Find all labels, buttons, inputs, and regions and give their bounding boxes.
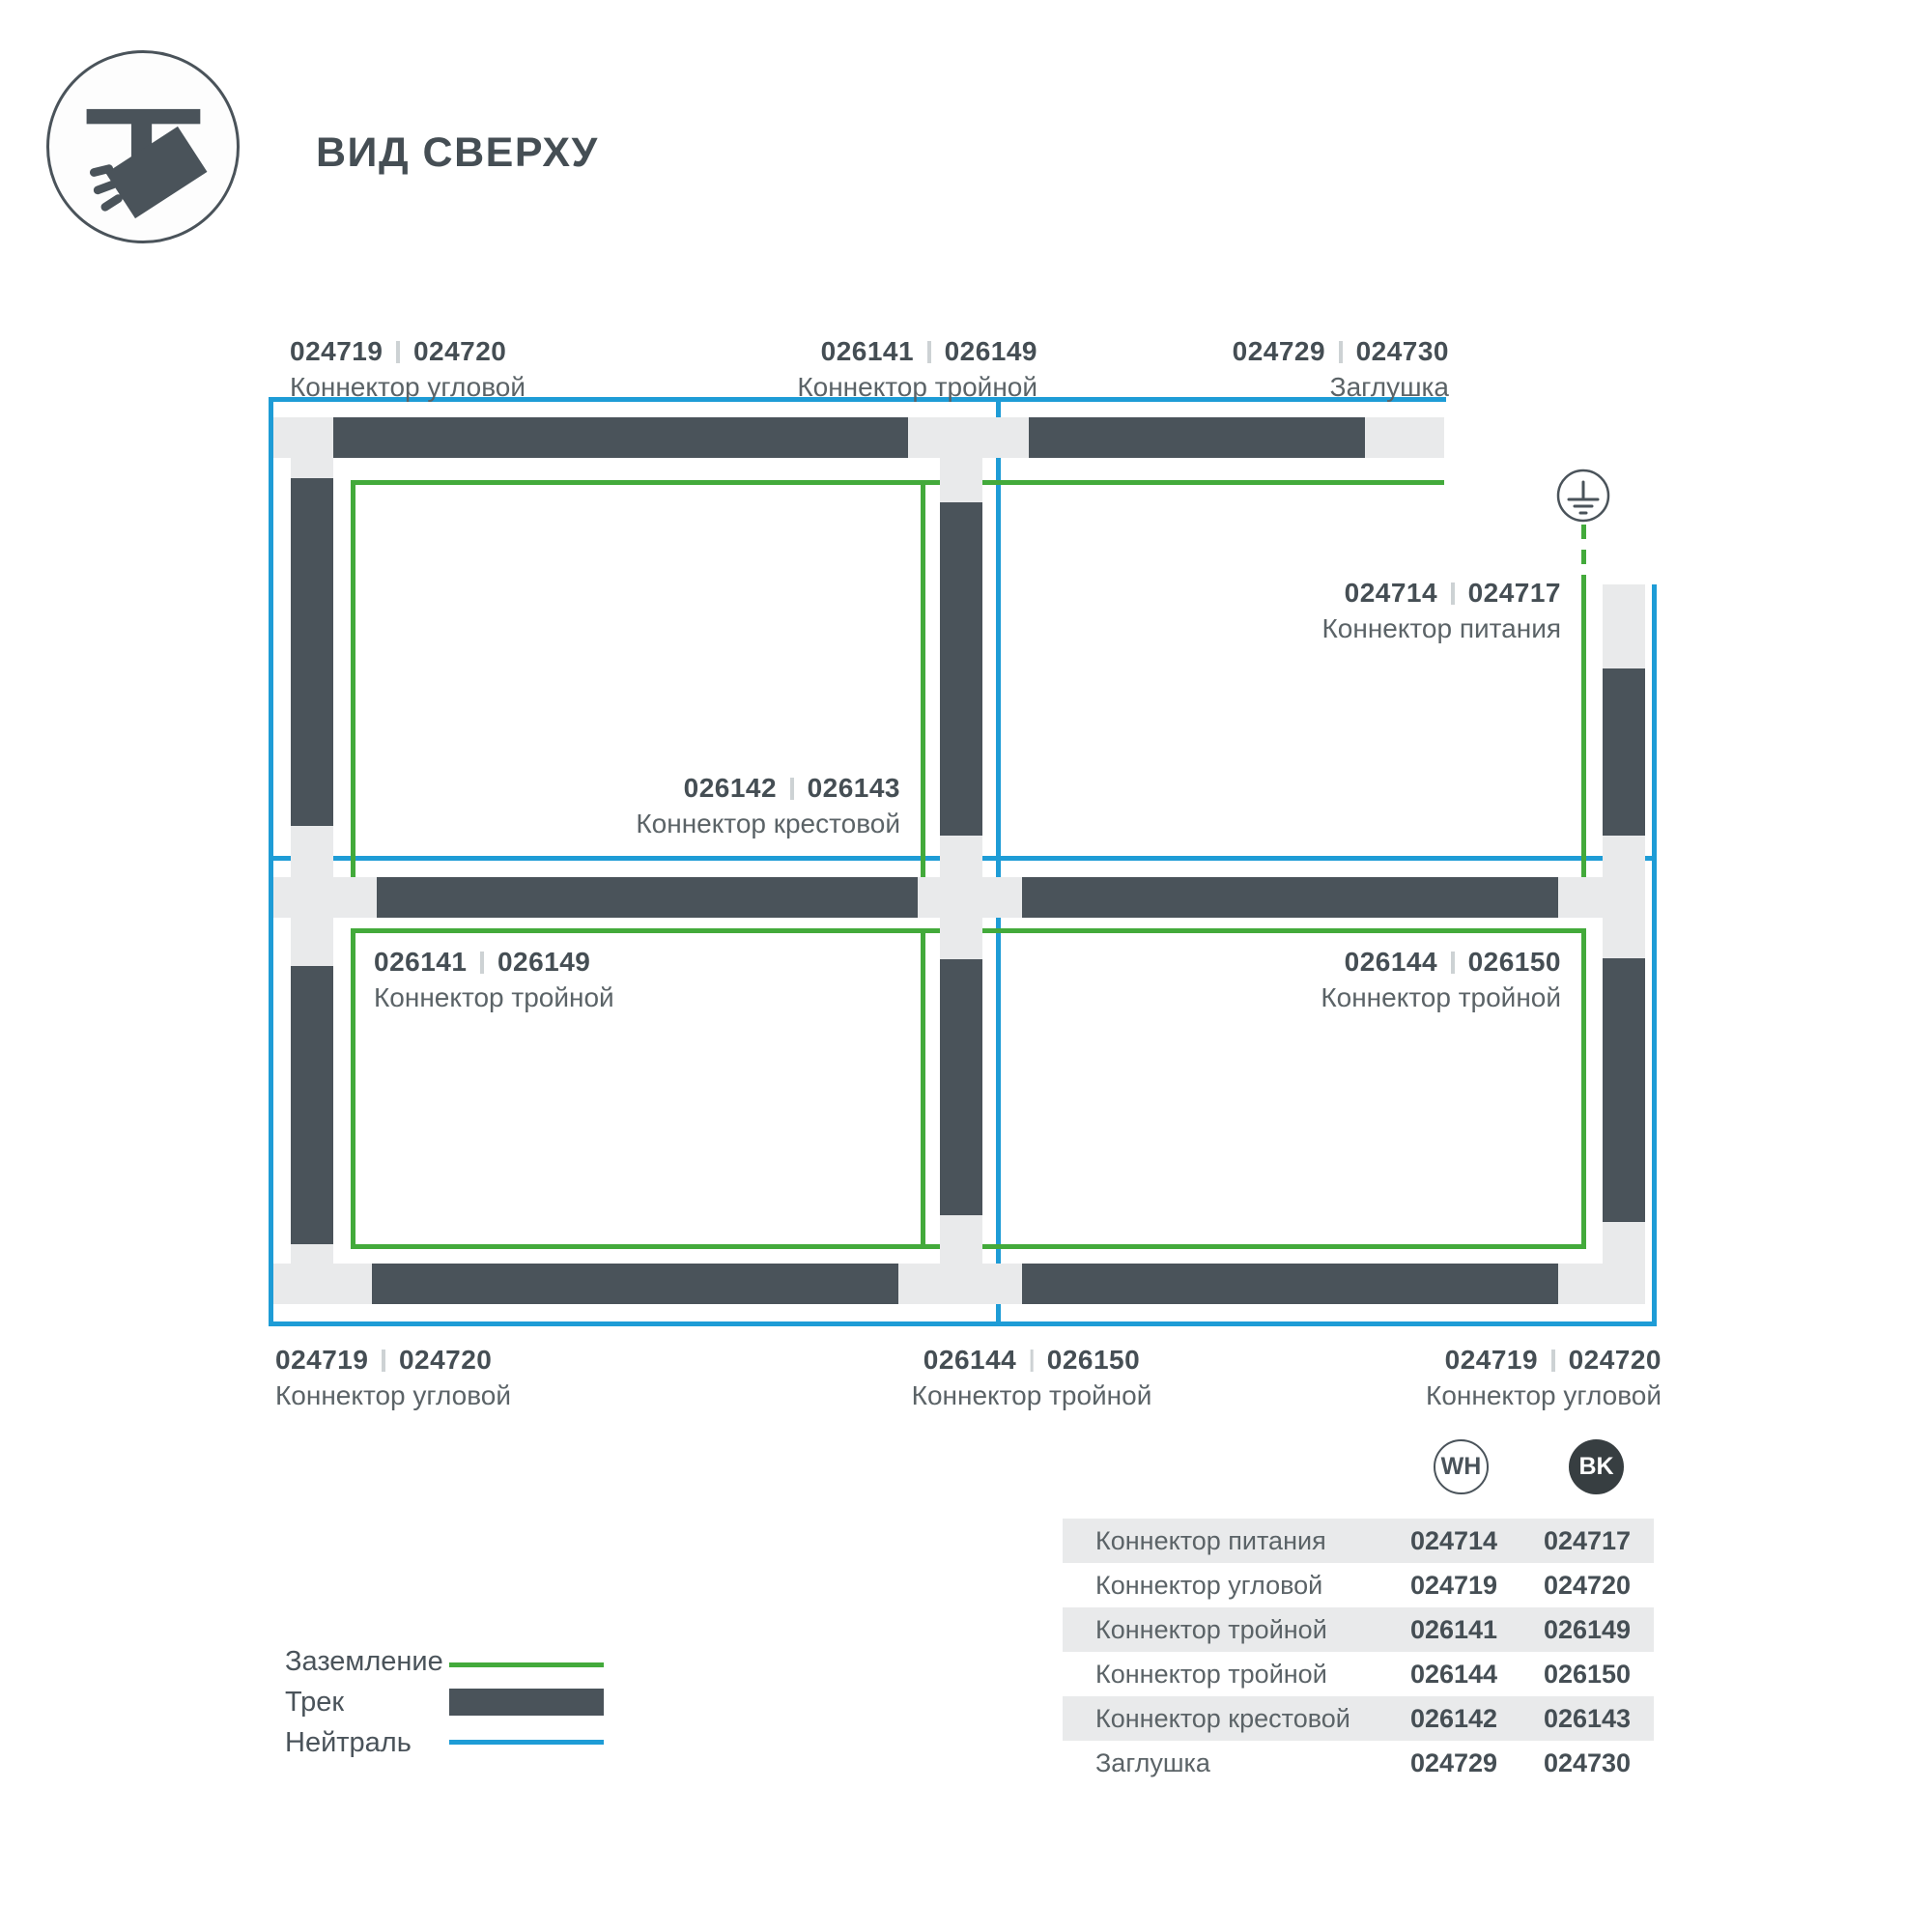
track-segment — [291, 966, 333, 1244]
neutral-line-bottom — [269, 1321, 1657, 1326]
row-name: Коннектор питания — [1063, 1526, 1387, 1556]
article-bk: 026150 — [1047, 1345, 1140, 1375]
track-segment — [1603, 958, 1645, 1222]
label-corner-connector-bottom-left: 024719024720 Коннектор угловой — [275, 1345, 511, 1411]
row-wh-code: 024729 — [1387, 1748, 1520, 1778]
code-separator — [1339, 341, 1343, 363]
connector-name: Коннектор угловой — [275, 1380, 511, 1411]
row-bk-code: 024720 — [1520, 1571, 1654, 1601]
neutral-line-left — [269, 397, 273, 1326]
code-separator — [1451, 952, 1455, 974]
color-badge-white: WH — [1434, 1439, 1489, 1494]
row-bk-code: 024730 — [1520, 1748, 1654, 1778]
article-bk: 024720 — [399, 1345, 492, 1375]
page-title: ВИД СВЕРХУ — [316, 129, 599, 177]
ground-line — [921, 928, 925, 1249]
track-segment — [333, 417, 908, 458]
track-spotlight-glyph — [49, 53, 236, 240]
article-table: Коннектор питания 024714 024717 Коннекто… — [1063, 1519, 1654, 1785]
track-segment — [372, 1264, 898, 1304]
article-wh: 024729 — [1233, 336, 1325, 366]
neutral-line-right — [1652, 584, 1657, 1326]
connector-name: Коннектор тройной — [374, 982, 614, 1013]
article-wh: 026141 — [821, 336, 914, 366]
article-wh: 024719 — [275, 1345, 368, 1375]
ground-line — [351, 928, 355, 1249]
earth-ground-icon — [1555, 468, 1611, 535]
ground-line — [921, 480, 925, 878]
track-segment — [377, 877, 918, 918]
ground-line — [1581, 928, 1586, 1249]
connector-name: Заглушка — [1233, 372, 1449, 403]
code-separator — [1551, 1350, 1555, 1372]
connector-name: Коннектор питания — [1321, 613, 1561, 644]
label-cross-connector: 026142026143 Коннектор крестовой — [636, 773, 900, 839]
connector-name: Коннектор угловой — [1426, 1380, 1662, 1411]
article-wh: 026144 — [1345, 947, 1437, 977]
neutral-line-center — [996, 397, 1001, 1326]
connector-name: Коннектор угловой — [290, 372, 526, 403]
article-bk: 026150 — [1468, 947, 1561, 977]
row-bk-code: 026149 — [1520, 1615, 1654, 1645]
article-wh: 026141 — [374, 947, 467, 977]
article-bk: 024730 — [1356, 336, 1449, 366]
connector-name: Коннектор тройной — [1321, 982, 1561, 1013]
label-triple-connector-middle-left: 026141026149 Коннектор тройной — [374, 947, 614, 1013]
row-wh-code: 026144 — [1387, 1660, 1520, 1690]
row-bk-code: 026150 — [1520, 1660, 1654, 1690]
table-row: Коннектор питания 024714 024717 — [1063, 1519, 1654, 1563]
article-wh: 024719 — [290, 336, 383, 366]
legend-item-track: Трек — [285, 1687, 344, 1719]
row-name: Коннектор тройной — [1063, 1615, 1387, 1645]
row-wh-code: 026141 — [1387, 1615, 1520, 1645]
article-bk: 026149 — [497, 947, 590, 977]
green-line-swatch — [449, 1662, 604, 1667]
ground-line — [1581, 584, 1586, 878]
label-power-connector: 024714024717 Коннектор питания — [1321, 578, 1561, 644]
article-wh: 024719 — [1445, 1345, 1538, 1375]
legend-item-ground: Заземление — [285, 1646, 443, 1678]
track-segment — [940, 502, 982, 836]
article-bk: 026143 — [808, 773, 900, 803]
label-end-cap: 024729024730 Заглушка — [1233, 336, 1449, 403]
code-separator — [480, 952, 484, 974]
row-name: Заглушка — [1063, 1748, 1387, 1778]
code-separator — [382, 1350, 385, 1372]
ground-line-top — [351, 480, 1444, 485]
article-bk: 026149 — [945, 336, 1037, 366]
code-separator — [927, 341, 931, 363]
row-bk-code: 026143 — [1520, 1704, 1654, 1734]
color-badge-black: BK — [1569, 1439, 1624, 1494]
row-name: Коннектор крестовой — [1063, 1704, 1387, 1734]
label-corner-connector-top-left: 024719024720 Коннектор угловой — [290, 336, 526, 403]
connector-name: Коннектор крестовой — [636, 809, 900, 839]
article-bk: 024717 — [1468, 578, 1561, 608]
track-segment — [1029, 417, 1365, 458]
row-name: Коннектор тройной — [1063, 1660, 1387, 1690]
label-triple-connector-bottom: 026144026150 Коннектор тройной — [912, 1345, 1152, 1411]
row-bk-code: 024717 — [1520, 1526, 1654, 1556]
code-separator — [1030, 1350, 1034, 1372]
article-bk: 024720 — [413, 336, 506, 366]
code-separator — [396, 341, 400, 363]
article-wh: 026142 — [684, 773, 777, 803]
track-segment — [1022, 877, 1558, 918]
label-triple-connector-top: 026141026149 Коннектор тройной — [797, 336, 1037, 403]
code-separator — [790, 778, 794, 800]
row-name: Коннектор угловой — [1063, 1571, 1387, 1601]
table-row: Коннектор угловой 024719 024720 — [1063, 1563, 1654, 1607]
page: ВИД СВЕРХУ 0247 — [0, 0, 1932, 1932]
article-wh: 026144 — [923, 1345, 1016, 1375]
legend-item-neutral: Нейтраль — [285, 1727, 412, 1759]
label-corner-connector-bottom-right: 024719024720 Коннектор угловой — [1426, 1345, 1662, 1411]
connector-name: Коннектор тройной — [912, 1380, 1152, 1411]
article-bk: 024720 — [1569, 1345, 1662, 1375]
row-wh-code: 026142 — [1387, 1704, 1520, 1734]
table-row: Коннектор тройной 026144 026150 — [1063, 1652, 1654, 1696]
track-bar-swatch — [449, 1689, 604, 1716]
label-triple-connector-middle-right: 026144026150 Коннектор тройной — [1321, 947, 1561, 1013]
row-wh-code: 024719 — [1387, 1571, 1520, 1601]
track-segment — [1022, 1264, 1558, 1304]
table-row: Заглушка 024729 024730 — [1063, 1741, 1654, 1785]
track-spotlight-icon — [46, 50, 240, 243]
table-row: Коннектор крестовой 026142 026143 — [1063, 1696, 1654, 1741]
code-separator — [1451, 582, 1455, 605]
ground-line — [351, 480, 355, 878]
track-segment — [1603, 668, 1645, 836]
article-wh: 024714 — [1345, 578, 1437, 608]
table-row: Коннектор тройной 026141 026149 — [1063, 1607, 1654, 1652]
blue-line-swatch — [449, 1740, 604, 1745]
track-segment — [291, 478, 333, 826]
track-segment — [940, 959, 982, 1215]
connector-name: Коннектор тройной — [797, 372, 1037, 403]
row-wh-code: 024714 — [1387, 1526, 1520, 1556]
